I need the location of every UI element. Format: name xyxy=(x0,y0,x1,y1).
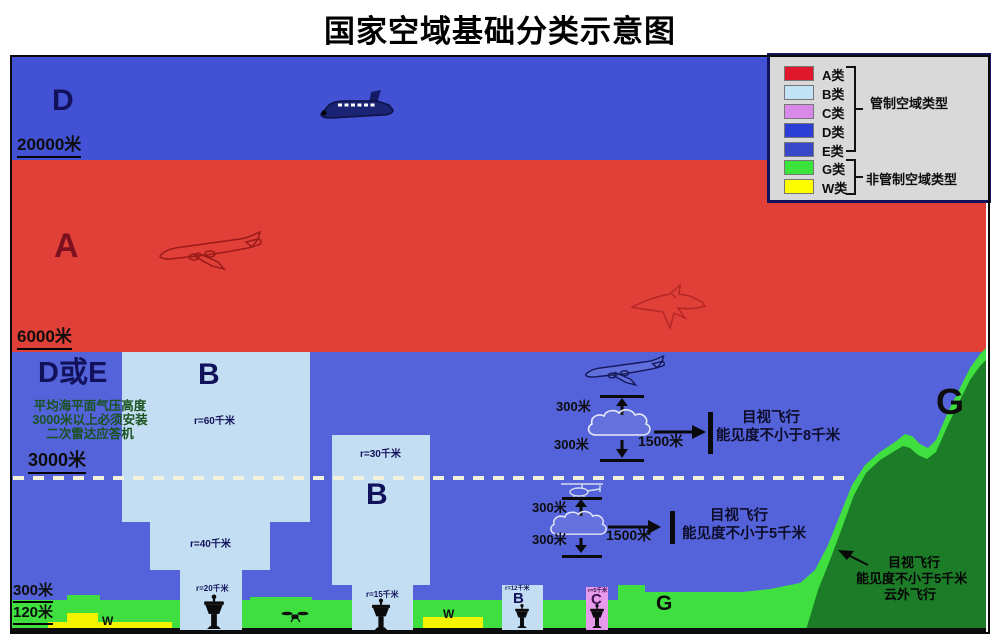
legend-item: D类 xyxy=(770,123,988,138)
legend-swatch-e xyxy=(784,142,814,157)
legend-label: W类 xyxy=(822,178,847,197)
legend-group-uncontrolled-label: 非管制空域类型 xyxy=(866,169,957,188)
airspace-diagram: 国家空域基础分类示意图 xyxy=(0,0,1000,642)
legend-bracket-uncontrolled xyxy=(846,159,864,196)
vfr-lower-cloud-below: 300米 xyxy=(532,533,567,547)
altitude-label-3000m: 3000米 xyxy=(28,451,86,474)
vfr-upper-horizontal: 1500米 xyxy=(638,434,683,449)
zone-label-w-mid: W xyxy=(443,608,454,621)
vfr-terrain-line3: 云外飞行 xyxy=(884,588,936,602)
transponder-note-line2: 3000米以上必须安装 xyxy=(30,414,150,428)
b-medium-r-lower: r=15千米 xyxy=(366,591,399,600)
vfr-upper-cloud-above: 300米 xyxy=(556,400,591,414)
vfr-terrain-line1: 目视飞行 xyxy=(888,556,940,570)
zone-label-g-mountain: G xyxy=(936,382,964,422)
legend-swatch-b xyxy=(784,85,814,100)
legend-group-controlled-label: 管制空域类型 xyxy=(870,93,948,112)
legend-swatch-a xyxy=(784,66,814,81)
b-large-r-mid: r=40千米 xyxy=(190,539,231,550)
legend: A类 B类 C类 D类 E类 G类 W类 管制空域类型 非管制空域类型 xyxy=(767,53,991,203)
b-large-r-lower: r=20千米 xyxy=(196,585,229,594)
legend-item: A类 xyxy=(770,66,988,81)
c-small-r: r=5千米 xyxy=(588,588,607,594)
legend-item: E类 xyxy=(770,142,988,157)
altitude-label-120m: 120米 xyxy=(13,605,53,625)
legend-label: B类 xyxy=(822,84,844,103)
legend-label: A类 xyxy=(822,65,844,84)
vfr-lower-rule-line2: 能见度不小于5千米 xyxy=(682,527,806,543)
page-title: 国家空域基础分类示意图 xyxy=(0,6,1000,51)
legend-label: E类 xyxy=(822,141,844,160)
b-small-label: B xyxy=(513,591,524,608)
legend-label: D类 xyxy=(822,122,844,141)
transponder-note-line3: 二次雷达应答机 xyxy=(30,428,150,442)
vfr-upper-cloud-below: 300米 xyxy=(554,438,589,452)
legend-swatch-d xyxy=(784,123,814,138)
zone-label-d-upper: D xyxy=(52,84,74,117)
legend-label: G类 xyxy=(822,159,845,178)
zone-label-a: A xyxy=(54,228,79,265)
transponder-note: 平均海平面气压高度 3000米以上必须安装 二次雷达应答机 xyxy=(30,400,150,441)
vfr-terrain-line2: 能见度不小于5千米 xyxy=(856,572,967,586)
vfr-upper-rule-line2: 能见度不小于8千米 xyxy=(716,429,840,445)
transponder-note-line1: 平均海平面气压高度 xyxy=(30,400,150,414)
b-medium-label: B xyxy=(366,478,388,511)
altitude-label-6000m: 6000米 xyxy=(17,328,72,350)
zone-label-d-or-e: D或E xyxy=(38,358,107,390)
c-small-label: C xyxy=(591,592,602,609)
b-large-r-upper: r=60千米 xyxy=(194,416,235,427)
altitude-label-300m: 300米 xyxy=(13,583,53,603)
vfr-lower-rule-line1: 目视飞行 xyxy=(710,509,768,525)
b-large-label: B xyxy=(198,358,220,391)
b-medium-r-upper: r=30千米 xyxy=(360,449,401,460)
zone-label-w-left: W xyxy=(102,615,113,628)
legend-label: C类 xyxy=(822,103,844,122)
legend-swatch-c xyxy=(784,104,814,119)
vfr-lower-horizontal: 1500米 xyxy=(606,528,651,543)
legend-swatch-g xyxy=(784,160,814,175)
legend-bracket-controlled xyxy=(846,66,864,152)
zone-label-g-surface: G xyxy=(656,592,672,615)
altitude-label-20000m: 20000米 xyxy=(17,136,81,158)
legend-swatch-w xyxy=(784,179,814,194)
vfr-upper-rule-line1: 目视飞行 xyxy=(742,411,800,427)
b-small-r: r=12千米 xyxy=(505,586,530,593)
b-large-lower-block xyxy=(180,570,242,630)
vfr-lower-cloud-above: 300米 xyxy=(532,501,567,515)
